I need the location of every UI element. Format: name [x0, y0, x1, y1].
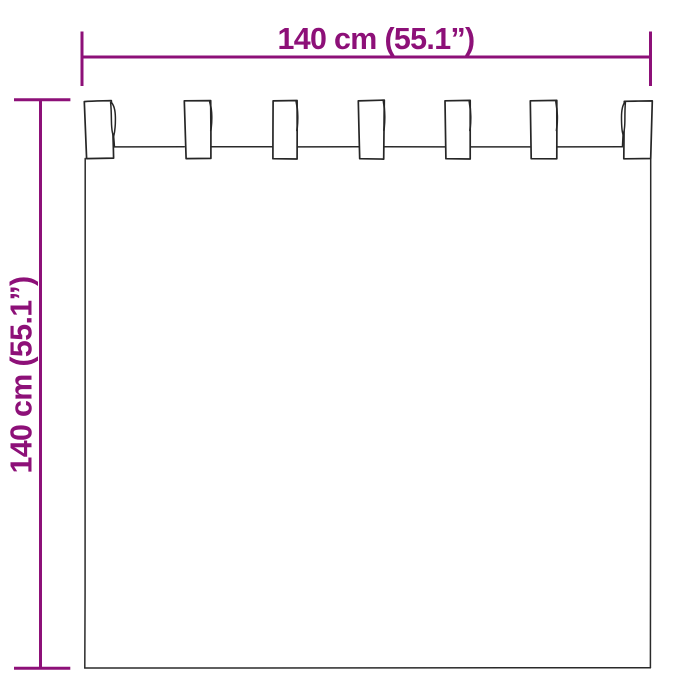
svg-text:140 cm (55.1”): 140 cm (55.1”) [5, 276, 39, 473]
svg-text:140 cm (55.1”): 140 cm (55.1”) [277, 22, 474, 56]
